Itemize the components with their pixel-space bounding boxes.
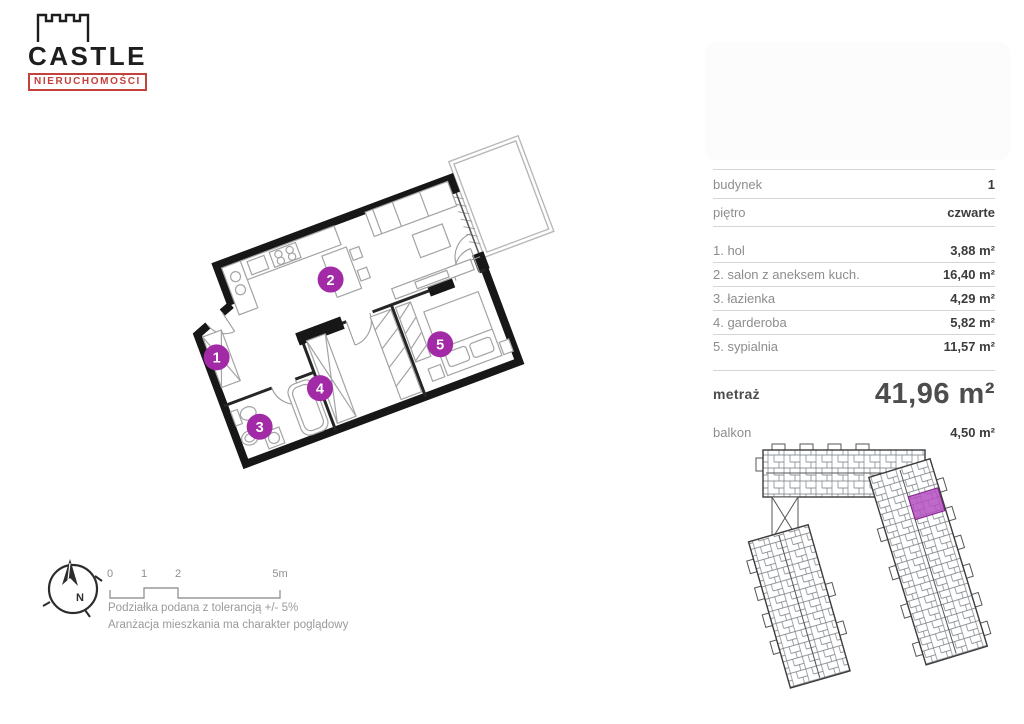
- scale-bar-line: [110, 588, 280, 598]
- room-badge-1: 1: [204, 344, 230, 370]
- scale-tick-1: 1: [141, 568, 147, 580]
- room-badge-4: 4: [307, 375, 333, 401]
- note-tolerance: Podziałka podana z tolerancją +/- 5%: [108, 600, 348, 617]
- room-row: 3. łazienka 4,29 m²: [713, 287, 995, 311]
- room-name: 4. garderoba: [713, 315, 787, 330]
- note-arrangement: Aranżacja mieszkania ma charakter pogląd…: [108, 617, 348, 634]
- logo-title: CASTLE: [28, 43, 147, 70]
- svg-text:3: 3: [256, 420, 264, 436]
- brochure-page: CASTLE NIERUCHOMOŚCI: [0, 0, 1024, 724]
- balcony-value: 4,50 m²: [950, 425, 995, 440]
- building-label: budynek: [713, 177, 762, 192]
- total-area-label: metraż: [713, 386, 760, 402]
- scale-tick-5m: 5m: [272, 568, 287, 580]
- total-area-value: 41,96 m²: [875, 378, 995, 411]
- room-area: 3,88 m²: [950, 243, 995, 258]
- building-value: 1: [988, 177, 995, 192]
- room-badge-2: 2: [318, 267, 344, 293]
- site-wing-right: [862, 457, 994, 667]
- room-name: 1. hol: [713, 243, 745, 258]
- floor-value: czwarte: [947, 205, 995, 220]
- room-name: 2. salon z aneksem kuch.: [713, 267, 860, 282]
- balcony-label: balkon: [713, 425, 751, 440]
- svg-text:5: 5: [436, 337, 444, 353]
- room-area: 4,29 m²: [950, 291, 995, 306]
- castle-battlement-icon: [34, 12, 92, 42]
- scale-tick-2: 2: [175, 568, 181, 580]
- north-compass: N: [40, 553, 108, 621]
- svg-text:4: 4: [316, 381, 324, 397]
- svg-text:2: 2: [327, 273, 335, 289]
- watermark-area: [705, 42, 1010, 160]
- room-row: 5. sypialnia 11,57 m²: [713, 335, 995, 358]
- room-area: 5,82 m²: [950, 315, 995, 330]
- room-area: 11,57 m²: [944, 339, 995, 354]
- floor-label: piętro: [713, 205, 746, 220]
- floor-row: piętro czwarte: [713, 199, 995, 227]
- room-row: 4. garderoba 5,82 m²: [713, 311, 995, 335]
- room-name: 3. łazienka: [713, 291, 775, 306]
- svg-text:1: 1: [213, 351, 221, 367]
- building-site-plan: [735, 440, 1024, 724]
- unit-info-table: budynek 1 piętro czwarte 1. hol 3,88 m² …: [713, 169, 995, 447]
- total-area-row: metraż 41,96 m²: [713, 371, 995, 417]
- apartment-floor-plan: 1 2 3 4 5: [120, 90, 570, 520]
- room-name: 5. sypialnia: [713, 339, 778, 354]
- room-area: 16,40 m²: [943, 267, 995, 282]
- room-badge-5: 5: [427, 331, 453, 357]
- castle-logo: CASTLE NIERUCHOMOŚCI: [28, 12, 147, 91]
- site-wing-left: [742, 523, 857, 690]
- room-badge-3: 3: [247, 414, 273, 440]
- room-row: 1. hol 3,88 m²: [713, 239, 995, 263]
- room-row: 2. salon z aneksem kuch. 16,40 m²: [713, 263, 995, 287]
- disclaimer-notes: Podziałka podana z tolerancją +/- 5% Ara…: [108, 600, 348, 634]
- logo-subtitle: NIERUCHOMOŚCI: [28, 73, 147, 91]
- building-row: budynek 1: [713, 170, 995, 199]
- scale-tick-0: 0: [107, 568, 113, 580]
- compass-north-label: N: [76, 592, 84, 604]
